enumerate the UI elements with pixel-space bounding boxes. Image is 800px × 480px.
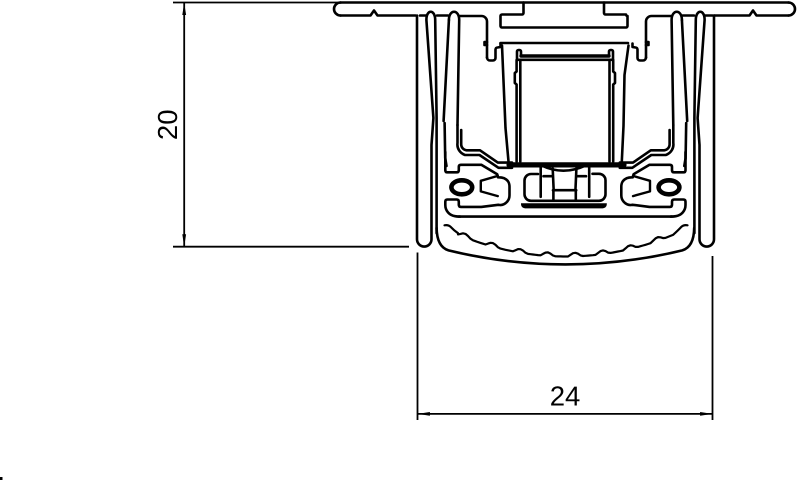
svg-text:24: 24 <box>550 380 581 411</box>
svg-text:20: 20 <box>152 110 183 141</box>
